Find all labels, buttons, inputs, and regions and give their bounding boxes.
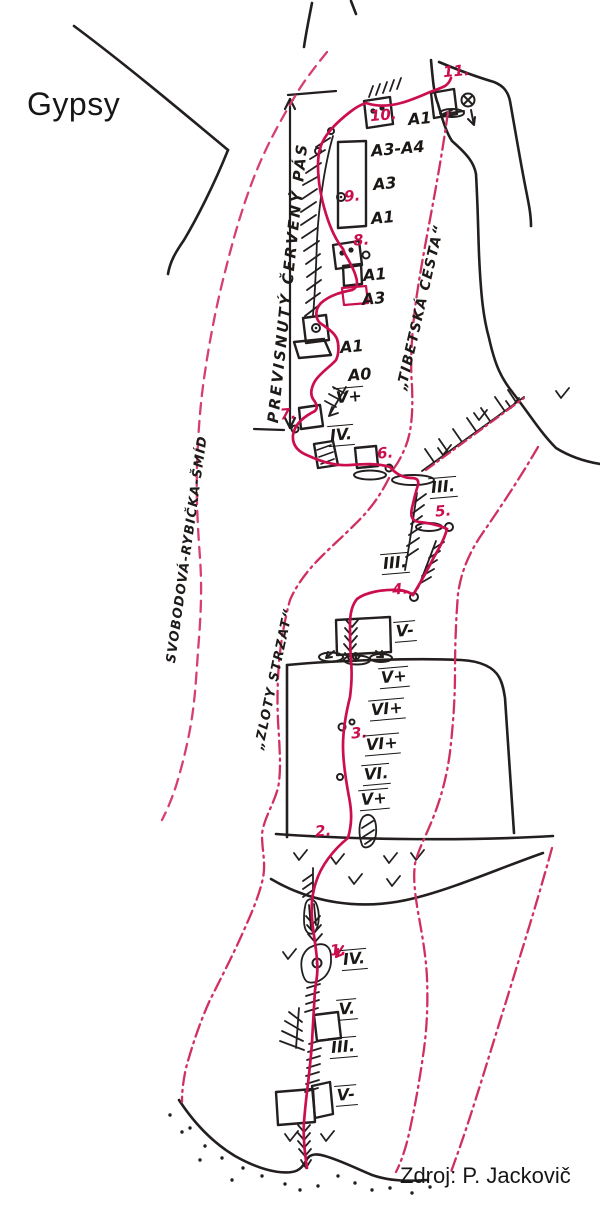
route-tibetska-line [391, 112, 524, 472]
scree-dots [168, 1113, 431, 1194]
route-zloty-line [182, 478, 389, 1102]
route-svobodova-line [162, 52, 327, 820]
descent-lines [396, 447, 552, 1172]
source-credit: Zdroj: P. Jackovič [400, 1163, 571, 1189]
crack-hatching [280, 78, 569, 1168]
rock-features [276, 89, 457, 1125]
topo-drawing [0, 0, 600, 1219]
page-title: Gypsy [27, 86, 120, 123]
climbing-topo-page: Gypsy Zdroj: P. Jackovič PREVISNUTÝ ČERV… [0, 0, 600, 1219]
